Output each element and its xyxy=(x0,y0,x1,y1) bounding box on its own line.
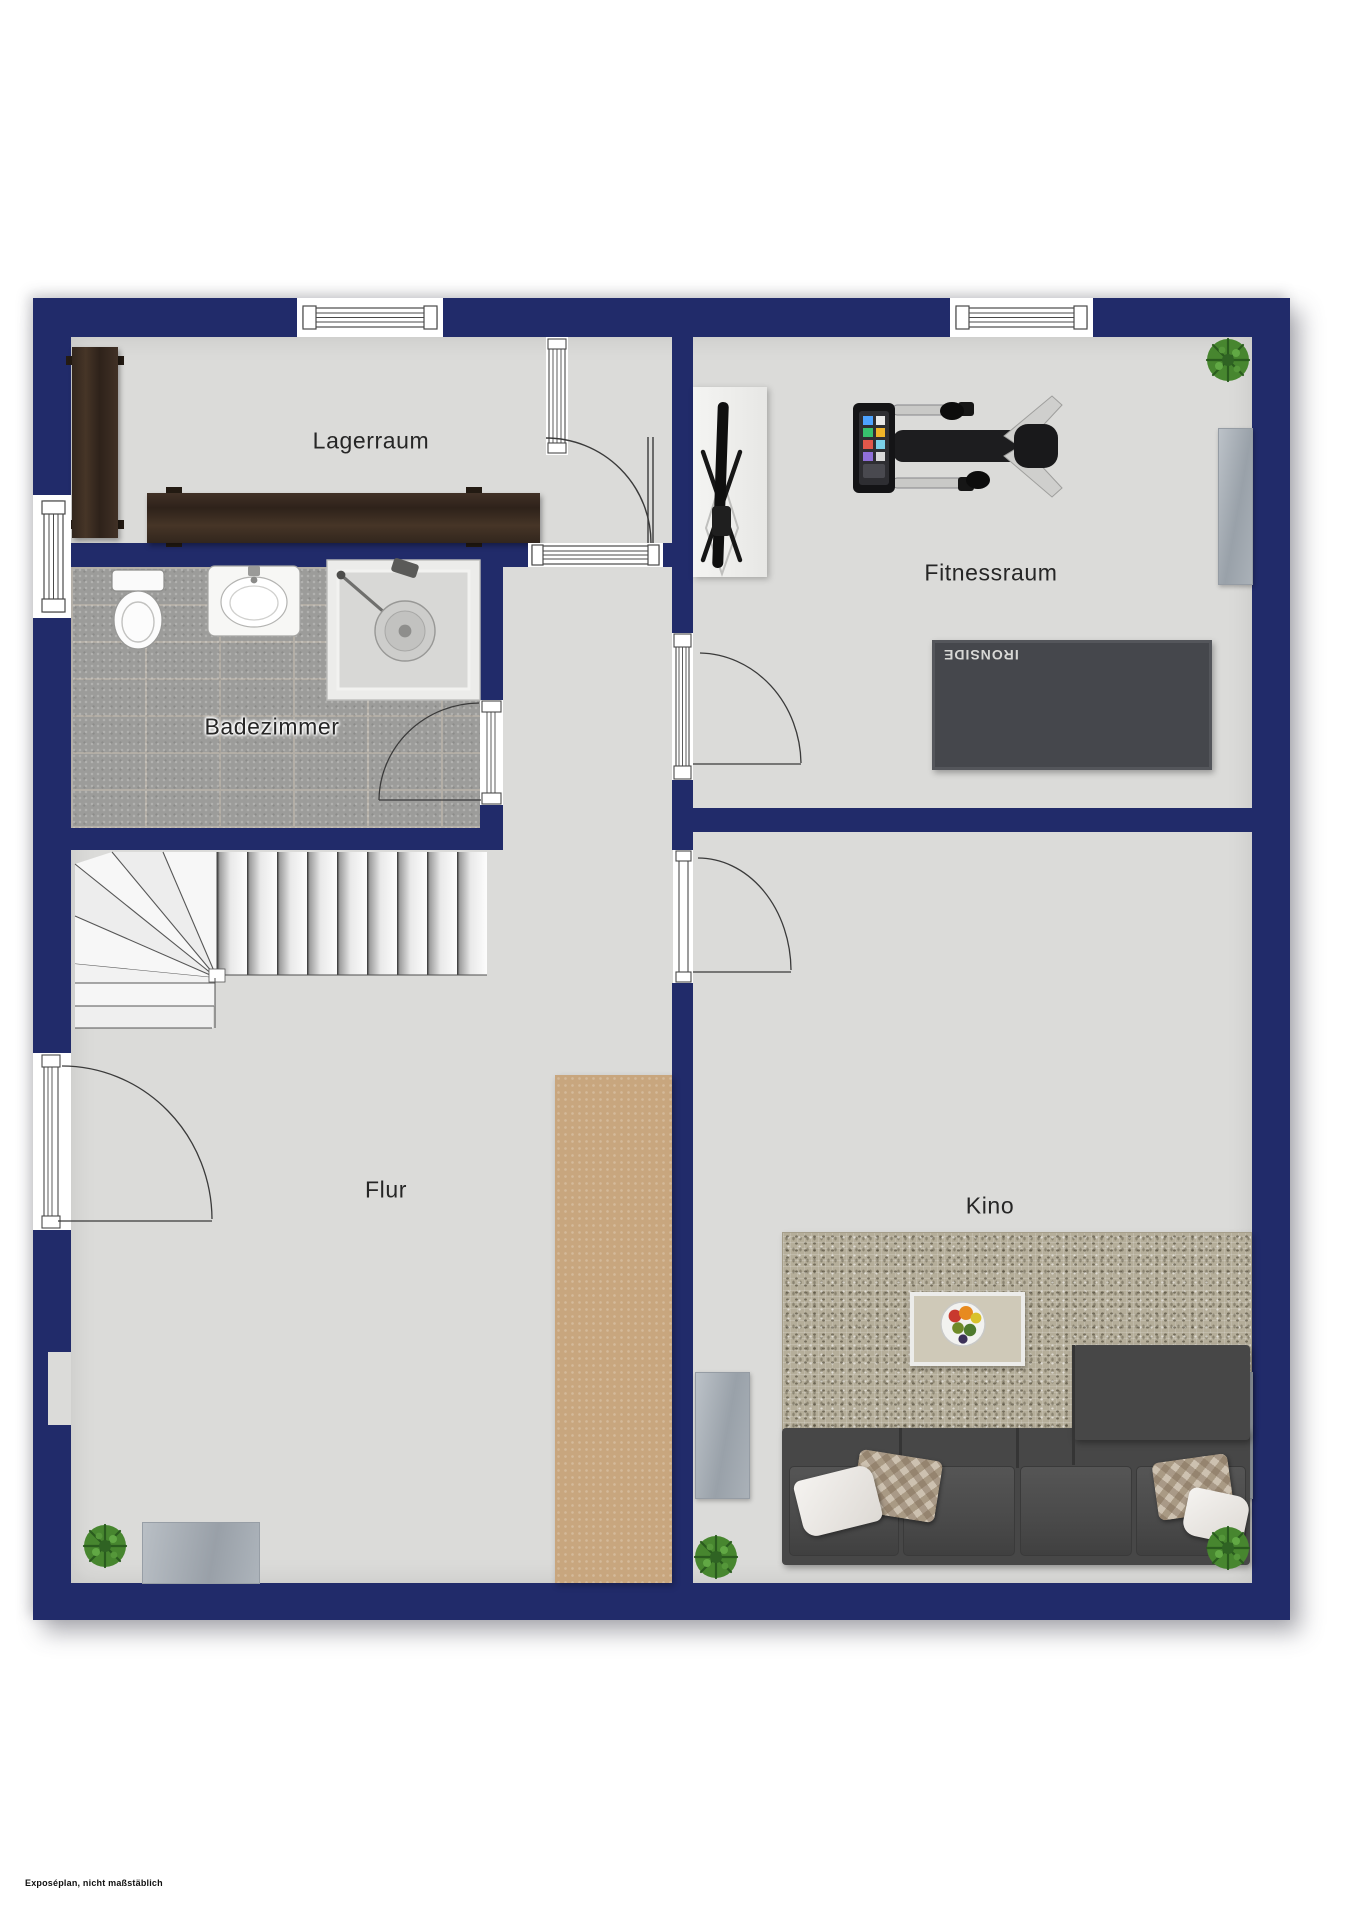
wall xyxy=(33,298,71,495)
room-label-lagerraum: Lagerraum xyxy=(313,428,430,455)
wall xyxy=(672,983,693,1583)
wall xyxy=(33,298,297,337)
gym-mat-brand-label: IRONSIDE xyxy=(943,647,1019,663)
wall xyxy=(1252,298,1290,1620)
wall xyxy=(33,1583,1290,1620)
fitness-wall-mat xyxy=(1218,428,1253,585)
kino-wall-mat-left xyxy=(695,1372,750,1499)
bathroom-tile-floor xyxy=(71,567,480,828)
wall xyxy=(33,1230,71,1352)
floor-plan-page: IRONSIDE xyxy=(0,0,1358,1920)
sofa-seam xyxy=(1072,1345,1075,1465)
coffee-table xyxy=(910,1292,1025,1366)
wall xyxy=(672,780,693,850)
storage-shelf-horizontal xyxy=(147,493,540,543)
wall xyxy=(71,543,528,567)
gym-mat: IRONSIDE xyxy=(932,640,1212,770)
wall xyxy=(443,298,950,337)
sofa-cushion xyxy=(1020,1466,1132,1556)
room-label-badezimmer: Badezimmer xyxy=(204,714,339,741)
wall xyxy=(693,808,1252,832)
plan-disclaimer: Exposéplan, nicht maßstäblich xyxy=(25,1878,163,1888)
hallway-runner-rug xyxy=(555,1075,672,1583)
wall xyxy=(480,567,503,700)
room-label-flur: Flur xyxy=(365,1177,407,1204)
sofa-seam xyxy=(1016,1428,1019,1468)
wall-niche xyxy=(48,1352,71,1425)
wall-niche-strip xyxy=(33,1352,48,1425)
storage-shelf-vertical xyxy=(72,347,118,538)
tv-sideboard xyxy=(693,387,767,577)
wall xyxy=(33,828,503,850)
room-label-kino: Kino xyxy=(966,1193,1014,1220)
wall xyxy=(480,805,503,828)
wall xyxy=(663,543,672,567)
wall xyxy=(672,337,693,633)
wall xyxy=(33,1425,71,1583)
sofa-chaise xyxy=(1073,1345,1250,1440)
room-label-fitnessraum: Fitnessraum xyxy=(924,560,1057,587)
doormat xyxy=(142,1522,260,1584)
